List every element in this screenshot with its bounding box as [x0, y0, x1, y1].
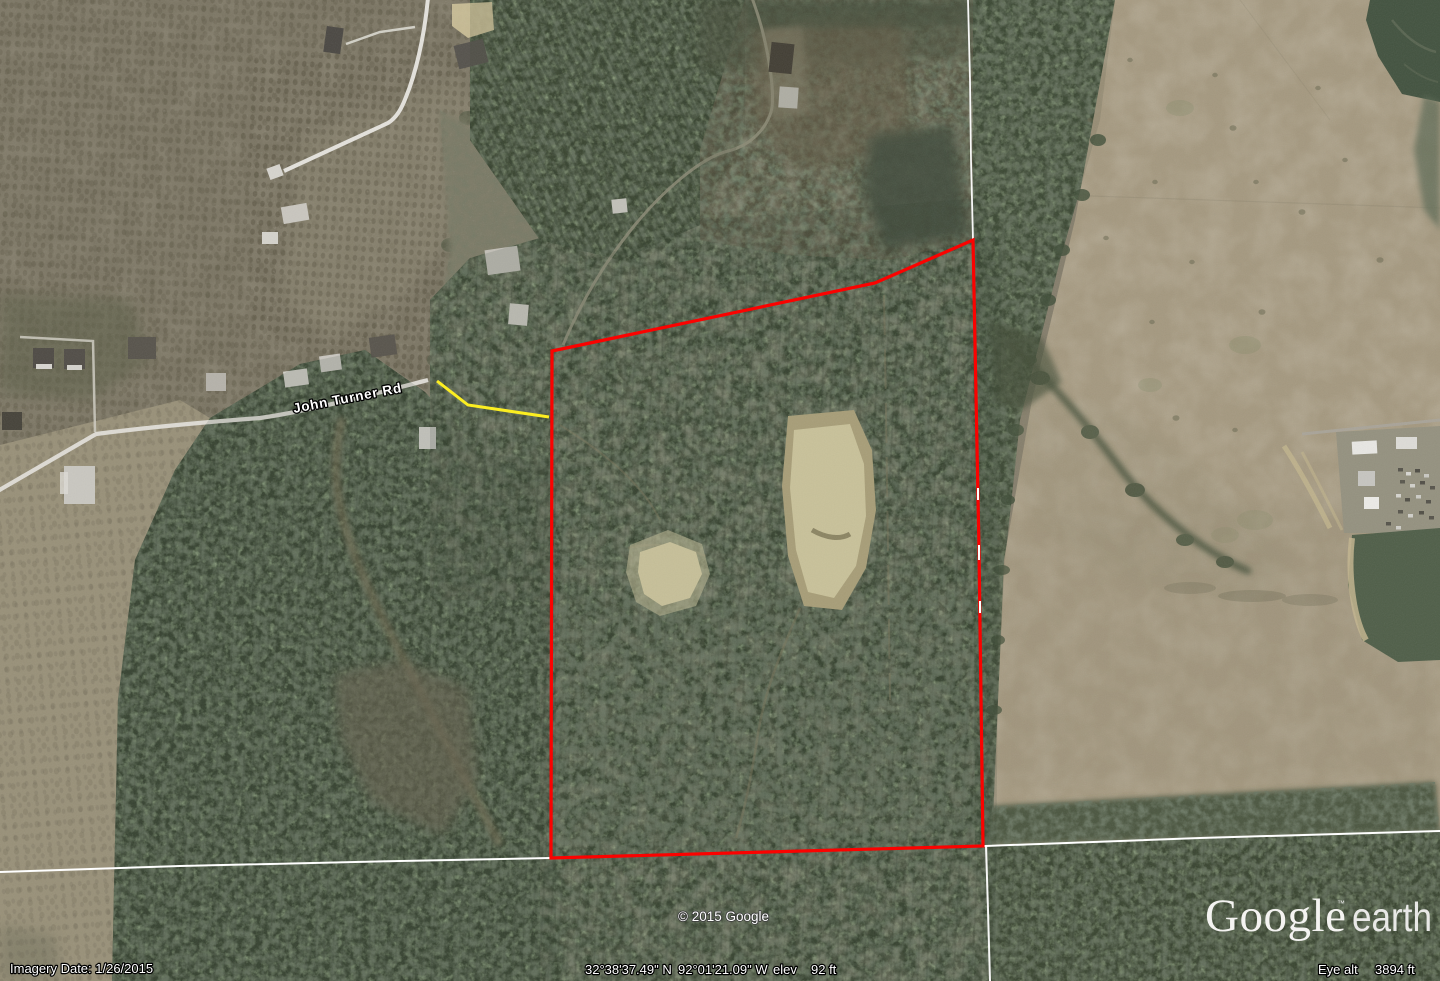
svg-text:Google: Google	[1205, 890, 1346, 942]
svg-text:Imagery Date: 1/26/2015: Imagery Date: 1/26/2015	[10, 961, 153, 976]
svg-text:© 2015 Google: © 2015 Google	[678, 909, 769, 924]
svg-text:™: ™	[1337, 899, 1345, 908]
svg-text:earth: earth	[1352, 894, 1432, 940]
